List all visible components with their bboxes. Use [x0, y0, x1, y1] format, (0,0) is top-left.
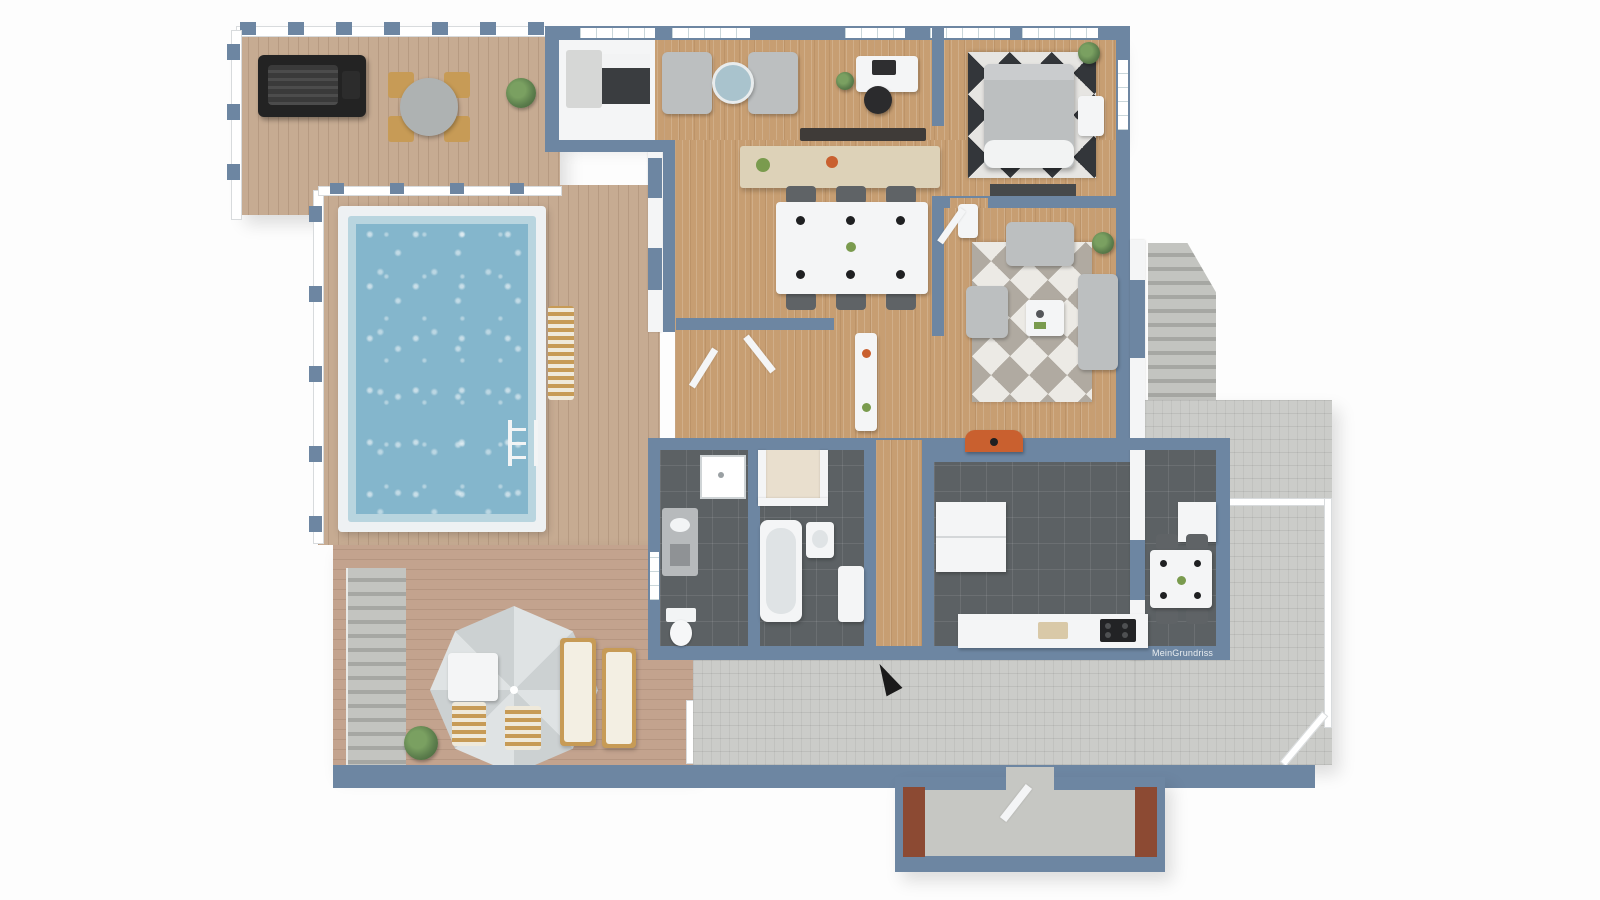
- wall-cap: [648, 158, 662, 198]
- kitchen-chair: [1186, 608, 1208, 624]
- living-plant: [1092, 232, 1114, 254]
- wall-dining-west: [663, 140, 675, 332]
- sofa: [1078, 274, 1118, 370]
- patio-steps: [1148, 243, 1216, 407]
- storage-mat: [566, 50, 602, 108]
- stone-walkway: [693, 658, 1135, 765]
- closet-wall: [758, 498, 828, 506]
- double-bed: [984, 64, 1074, 168]
- sun-lounger: [602, 648, 636, 748]
- railing-post: [510, 183, 524, 194]
- deck-plant: [506, 78, 536, 108]
- wall-block-south: [648, 646, 1230, 660]
- parasol-pole: [510, 686, 518, 694]
- wall-kitchen-east: [1216, 438, 1230, 660]
- armchair: [966, 286, 1008, 338]
- nightstand: [1078, 96, 1104, 136]
- hall-cabinet: [855, 333, 877, 431]
- kitchen-chair: [1156, 534, 1178, 550]
- railing-post: [309, 516, 322, 532]
- patio-railing: [1222, 498, 1332, 506]
- wall-cap: [1130, 540, 1145, 600]
- wall-block-west: [648, 438, 660, 660]
- dining-chair: [786, 292, 816, 310]
- wall-hall-east: [922, 450, 934, 648]
- pool-ladder: [508, 420, 538, 466]
- media-bench: [990, 184, 1076, 196]
- wall-living-west: [932, 196, 944, 336]
- railing-post: [330, 183, 344, 194]
- window: [1022, 28, 1098, 38]
- closet-wall: [820, 450, 828, 504]
- kitchen-counter: [958, 614, 1148, 648]
- utility-closet-floor: [763, 450, 824, 502]
- wall-perimeter-south: [333, 765, 1315, 788]
- kitchen-table: [1150, 550, 1212, 608]
- closet-wall: [758, 450, 766, 504]
- railing-post: [336, 22, 352, 35]
- dining-table: [776, 202, 928, 294]
- railing-post: [384, 22, 400, 35]
- dining-chair: [886, 292, 916, 310]
- terrace-plant: [404, 726, 438, 760]
- bbq-grill: [258, 55, 366, 117]
- coffee-table: [1026, 300, 1064, 336]
- deck-chair: [505, 706, 541, 750]
- wall-art: [800, 128, 926, 141]
- hallway-floor: [876, 450, 922, 660]
- railing-post: [480, 22, 496, 35]
- kitchen-chair: [1186, 534, 1208, 550]
- wall-living-south: [926, 450, 1130, 462]
- round-side-table: [712, 62, 754, 104]
- window: [672, 28, 750, 38]
- pool: [356, 224, 528, 514]
- outdoor-stairs: [346, 568, 406, 768]
- sun-lounger: [560, 638, 596, 746]
- hall-opening: [876, 440, 922, 450]
- armchair: [662, 52, 712, 114]
- balcony-railing-top: [236, 26, 564, 37]
- railing-post: [528, 22, 544, 35]
- office-plant: [836, 72, 854, 90]
- wall-bedroom-west: [932, 26, 944, 126]
- sideboard: [740, 146, 940, 188]
- wall-cap: [648, 248, 662, 290]
- bedroom-plant: [1078, 42, 1100, 64]
- floorplan-render: MeinGrundriss: [0, 0, 1600, 900]
- railing-post: [390, 183, 404, 194]
- cooktop: [1100, 619, 1136, 642]
- porch-floor: [917, 790, 1143, 856]
- railing-post: [227, 164, 240, 180]
- patio-railing: [1324, 498, 1332, 728]
- kitchen-chair: [1156, 608, 1178, 624]
- bathroom-cabinet: [838, 566, 864, 622]
- outdoor-dining-table: [400, 78, 458, 136]
- wall-cap: [1130, 280, 1145, 358]
- armchair: [748, 52, 798, 114]
- side-table: [448, 653, 498, 701]
- shower: [700, 455, 746, 499]
- kitchenette-counter: [602, 54, 650, 68]
- wall-west-upper: [545, 26, 559, 152]
- railing-post: [227, 104, 240, 120]
- railing-post: [450, 183, 464, 194]
- kitchen-tall-units: [936, 502, 1006, 572]
- railing-post: [309, 206, 322, 222]
- fireplace-stove: [965, 430, 1023, 452]
- porch-brick-wall: [903, 787, 925, 857]
- railing-post: [309, 286, 322, 302]
- pool-railing-top: [318, 186, 562, 196]
- porch-brick-wall: [1135, 787, 1157, 857]
- washbasin: [806, 522, 834, 558]
- office-chair: [864, 86, 892, 114]
- wall-hall-west: [864, 450, 876, 648]
- railing-post: [240, 22, 256, 35]
- bathroom-vanity: [662, 508, 698, 576]
- wall-block-north: [648, 438, 1230, 450]
- window: [1118, 60, 1128, 130]
- window: [650, 552, 659, 600]
- railing-post: [227, 44, 240, 60]
- railing-post: [432, 22, 448, 35]
- window: [845, 28, 905, 38]
- kitchenette-unit: [602, 68, 650, 104]
- bathtub: [760, 520, 802, 622]
- wall-storage-south: [545, 140, 675, 152]
- dining-chair: [836, 292, 866, 310]
- toilet: [670, 620, 692, 646]
- railing-post: [288, 22, 304, 35]
- pool-lounger: [548, 306, 574, 400]
- watermark: MeinGrundriss: [1152, 648, 1230, 660]
- railing-post: [309, 366, 322, 382]
- sofa: [1006, 222, 1074, 266]
- railing-post: [309, 446, 322, 462]
- window: [580, 28, 655, 38]
- monitor: [872, 60, 896, 75]
- wall-hall-north: [676, 318, 834, 330]
- deck-chair: [452, 702, 486, 746]
